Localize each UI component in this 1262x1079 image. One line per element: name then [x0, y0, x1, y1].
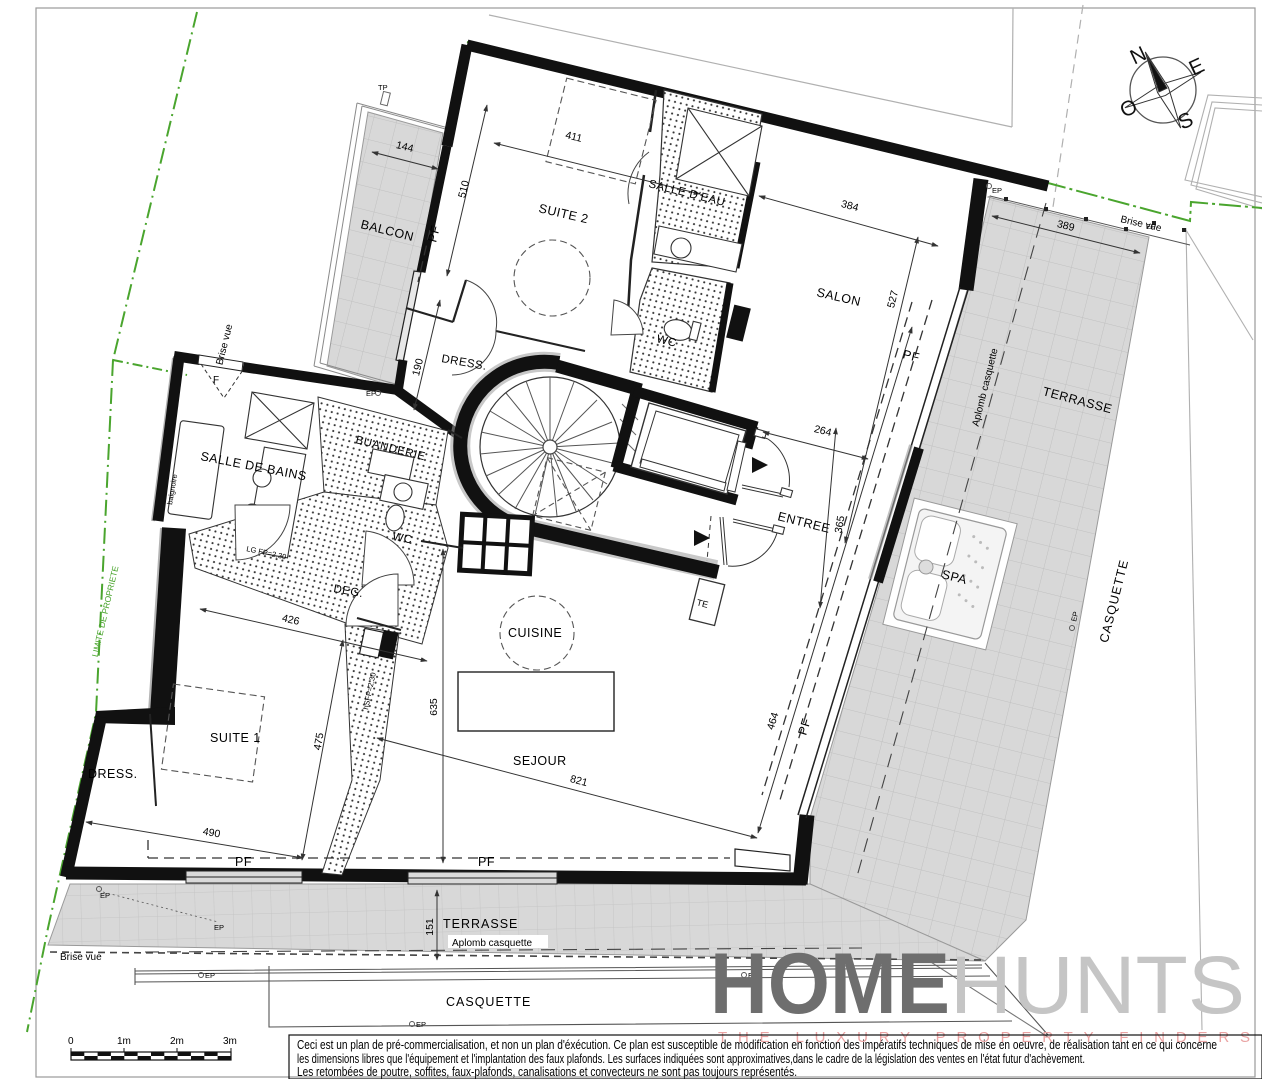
svg-text:EP: EP: [416, 1020, 426, 1029]
svg-text:EP: EP: [366, 389, 376, 398]
svg-text:PF: PF: [478, 855, 495, 869]
svg-text:PF: PF: [235, 855, 252, 869]
svg-text:0: 0: [68, 1036, 74, 1047]
svg-text:1m: 1m: [117, 1036, 131, 1047]
svg-text:TP: TP: [378, 83, 388, 92]
svg-text:SEJOUR: SEJOUR: [513, 754, 567, 768]
svg-text:EP: EP: [1146, 222, 1156, 231]
svg-text:EP: EP: [214, 923, 224, 932]
svg-text:CASQUETTE: CASQUETTE: [446, 995, 531, 1009]
svg-text:3m: 3m: [223, 1036, 237, 1047]
svg-text:CUISINE: CUISINE: [508, 626, 562, 640]
svg-text:F: F: [213, 375, 219, 386]
svg-text:EP: EP: [100, 891, 110, 900]
svg-text:Ceci est un plan de pré-commer: Ceci est un plan de pré-commercialisatio…: [297, 1037, 1217, 1052]
svg-text:HUNTS: HUNTS: [950, 940, 1245, 1031]
svg-text:Les retombées de poutre, soffi: Les retombées de poutre, soffites, faux-…: [297, 1064, 797, 1079]
svg-text:EP: EP: [205, 971, 215, 980]
svg-text:TERRASSE: TERRASSE: [443, 917, 518, 931]
svg-text:EP: EP: [992, 186, 1002, 195]
svg-text:HOME: HOME: [710, 936, 950, 1032]
svg-text:Aplomb casquette: Aplomb casquette: [452, 938, 532, 949]
svg-text:SUITE 1: SUITE 1: [210, 731, 261, 745]
svg-text:Brise vue: Brise vue: [60, 952, 102, 963]
svg-text:151: 151: [424, 918, 436, 936]
svg-text:2m: 2m: [170, 1036, 184, 1047]
svg-text:635: 635: [428, 698, 440, 716]
svg-text:DRESS.: DRESS.: [88, 767, 138, 781]
